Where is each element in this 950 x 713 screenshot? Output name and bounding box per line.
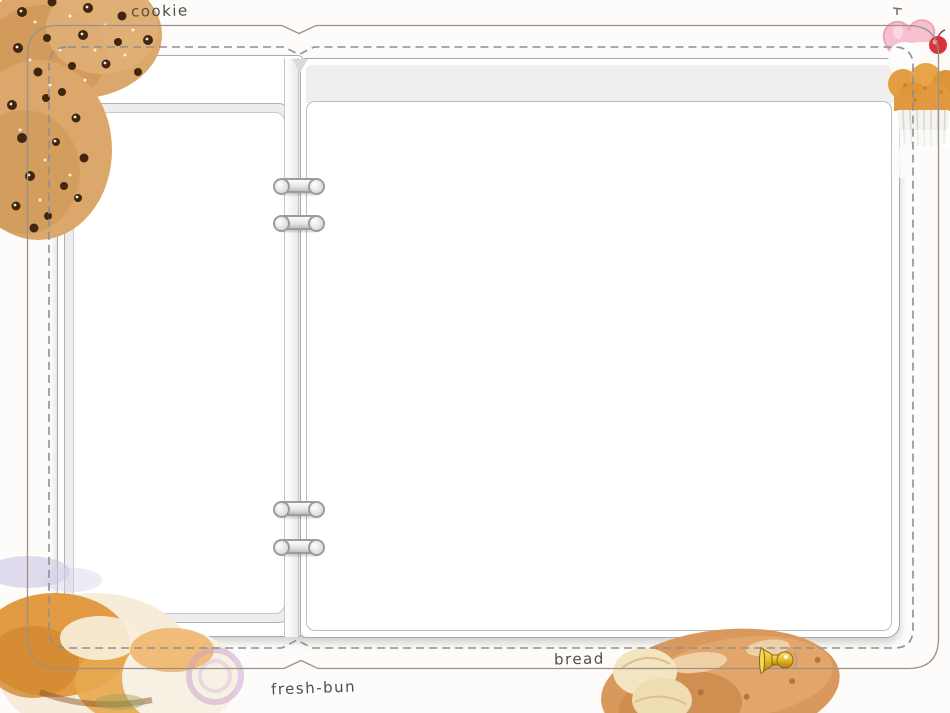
binder-ring (276, 215, 322, 230)
spine-fold (292, 59, 308, 73)
binder-ring (276, 501, 322, 516)
notebook-left-page (57, 55, 303, 637)
corner-mark (893, 8, 902, 15)
left-sidebar-content (73, 112, 285, 614)
onion-slice (189, 650, 241, 702)
slide-canvas: cookie bread fresh-bun (0, 0, 950, 713)
binder-ring (276, 178, 322, 193)
left-sidebar-panel (64, 103, 294, 623)
label-bread: bread (554, 650, 605, 669)
main-content-panel (306, 101, 892, 631)
audio-speaker-icon[interactable] (759, 642, 799, 678)
notebook-right-page (300, 58, 900, 638)
right-page-header (306, 65, 894, 103)
binder-ring (276, 539, 322, 554)
label-fresh-bun: fresh-bun (271, 678, 357, 699)
label-cookie: cookie (131, 1, 189, 20)
